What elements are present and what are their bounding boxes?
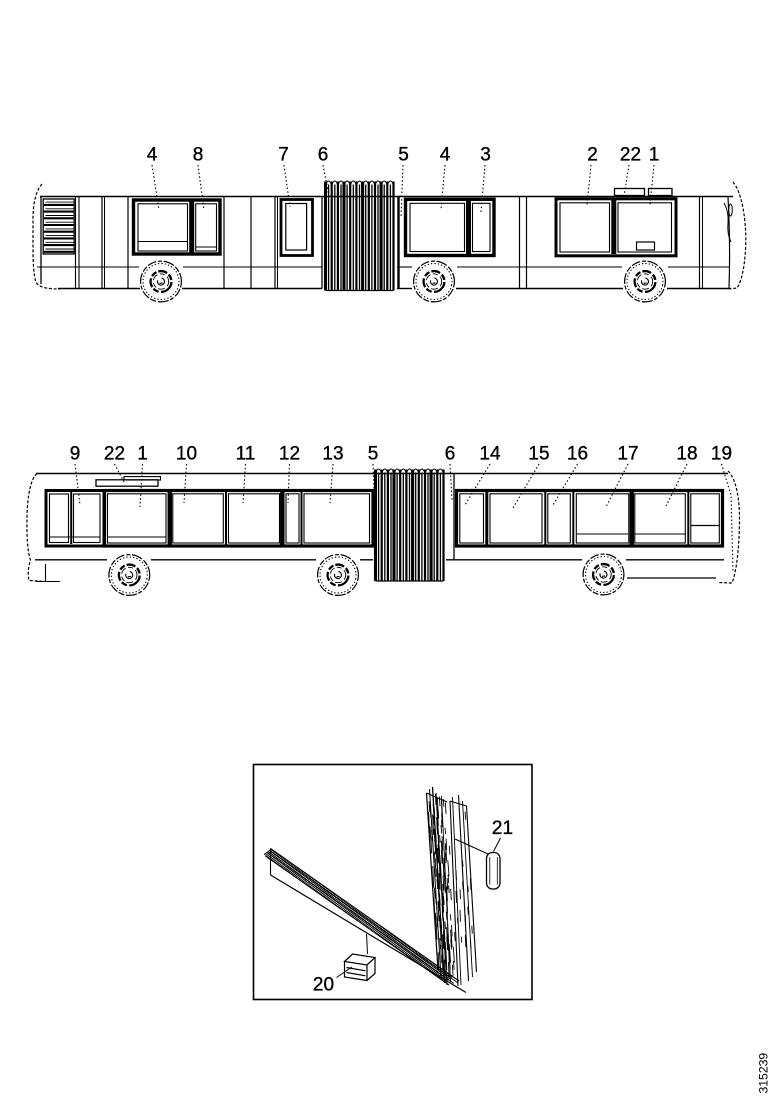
svg-text:13: 13 xyxy=(322,444,343,465)
svg-text:16: 16 xyxy=(567,444,588,465)
svg-text:315239: 315239 xyxy=(757,1053,771,1094)
svg-text:22: 22 xyxy=(620,145,641,166)
svg-text:15: 15 xyxy=(528,444,549,465)
svg-text:21: 21 xyxy=(492,818,513,839)
svg-text:3: 3 xyxy=(480,145,491,166)
svg-text:22: 22 xyxy=(104,444,125,465)
svg-text:11: 11 xyxy=(236,444,256,465)
svg-text:8: 8 xyxy=(193,145,204,166)
svg-text:4: 4 xyxy=(440,145,451,166)
svg-text:17: 17 xyxy=(617,444,638,465)
svg-text:14: 14 xyxy=(479,444,501,465)
svg-text:5: 5 xyxy=(368,444,379,465)
svg-text:18: 18 xyxy=(676,444,697,465)
svg-text:2: 2 xyxy=(587,145,598,166)
svg-text:1: 1 xyxy=(649,145,660,166)
svg-text:20: 20 xyxy=(313,975,334,996)
svg-text:9: 9 xyxy=(70,444,81,465)
svg-text:1: 1 xyxy=(137,444,148,465)
svg-text:6: 6 xyxy=(318,145,329,166)
svg-text:7: 7 xyxy=(278,145,289,166)
svg-text:5: 5 xyxy=(398,145,409,166)
svg-text:10: 10 xyxy=(176,444,197,465)
svg-text:19: 19 xyxy=(711,444,732,465)
svg-text:6: 6 xyxy=(445,444,456,465)
svg-text:12: 12 xyxy=(279,444,300,465)
svg-text:4: 4 xyxy=(147,145,158,166)
